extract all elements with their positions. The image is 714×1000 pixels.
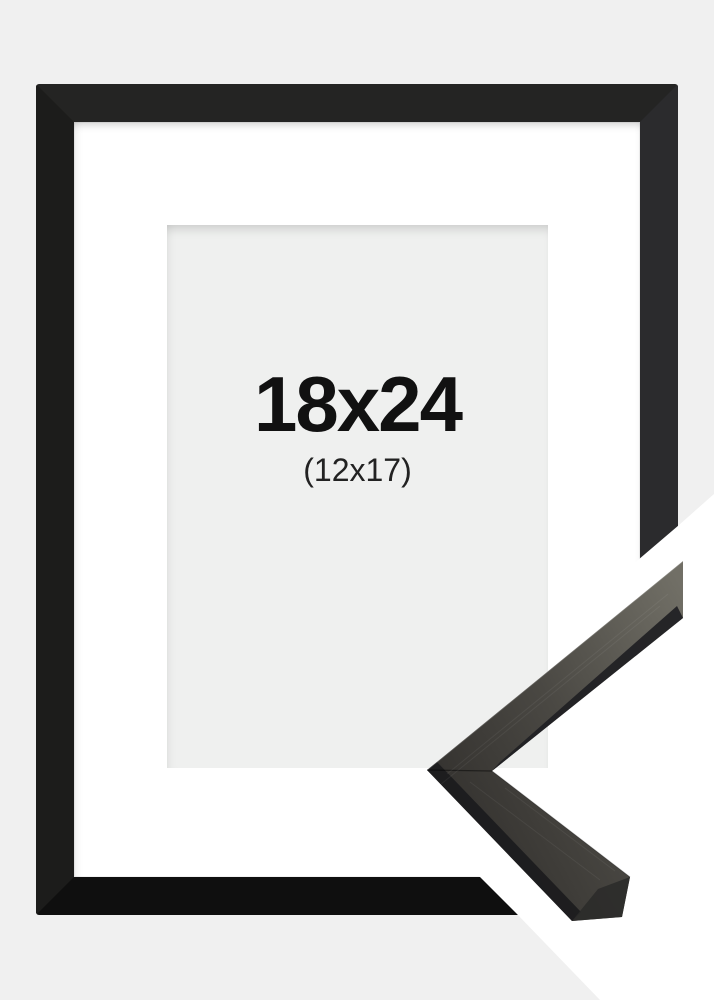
corner-sample-overlay — [0, 0, 714, 1000]
product-photo: 18x24 (12x17) — [0, 0, 714, 1000]
